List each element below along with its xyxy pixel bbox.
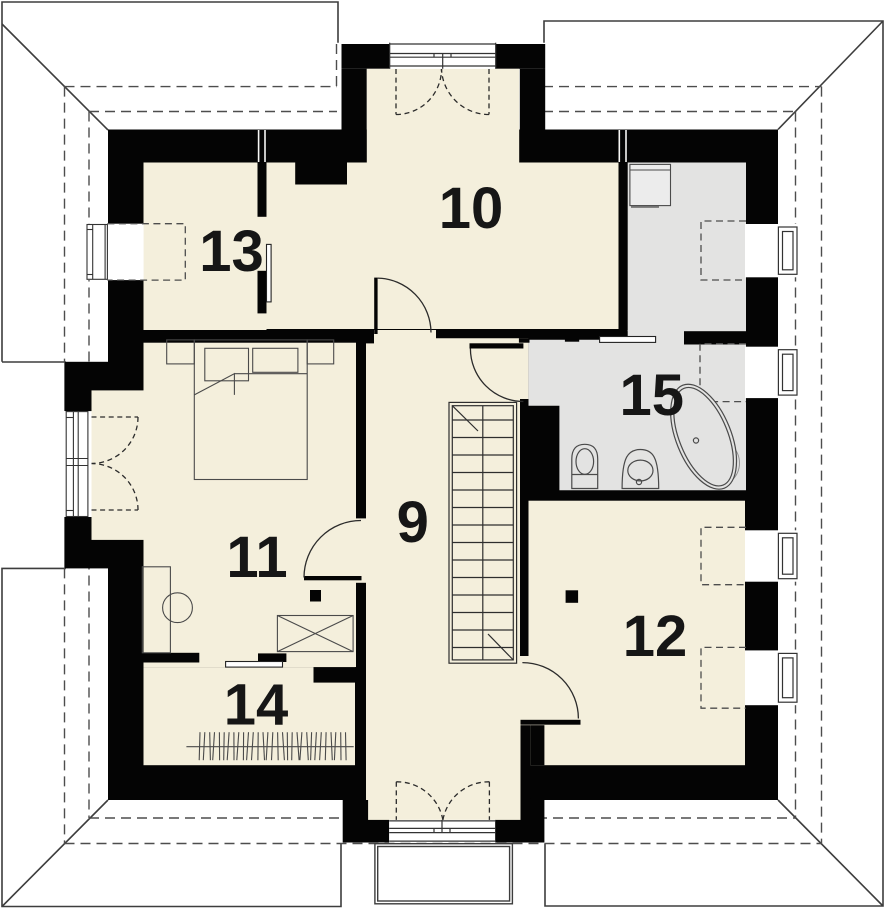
svg-text:12: 12 — [623, 604, 688, 669]
svg-text:10: 10 — [439, 176, 504, 241]
svg-text:9: 9 — [397, 490, 429, 555]
svg-text:11: 11 — [226, 525, 287, 590]
svg-text:15: 15 — [620, 363, 685, 428]
svg-text:13: 13 — [199, 219, 264, 284]
svg-text:14: 14 — [224, 673, 289, 738]
